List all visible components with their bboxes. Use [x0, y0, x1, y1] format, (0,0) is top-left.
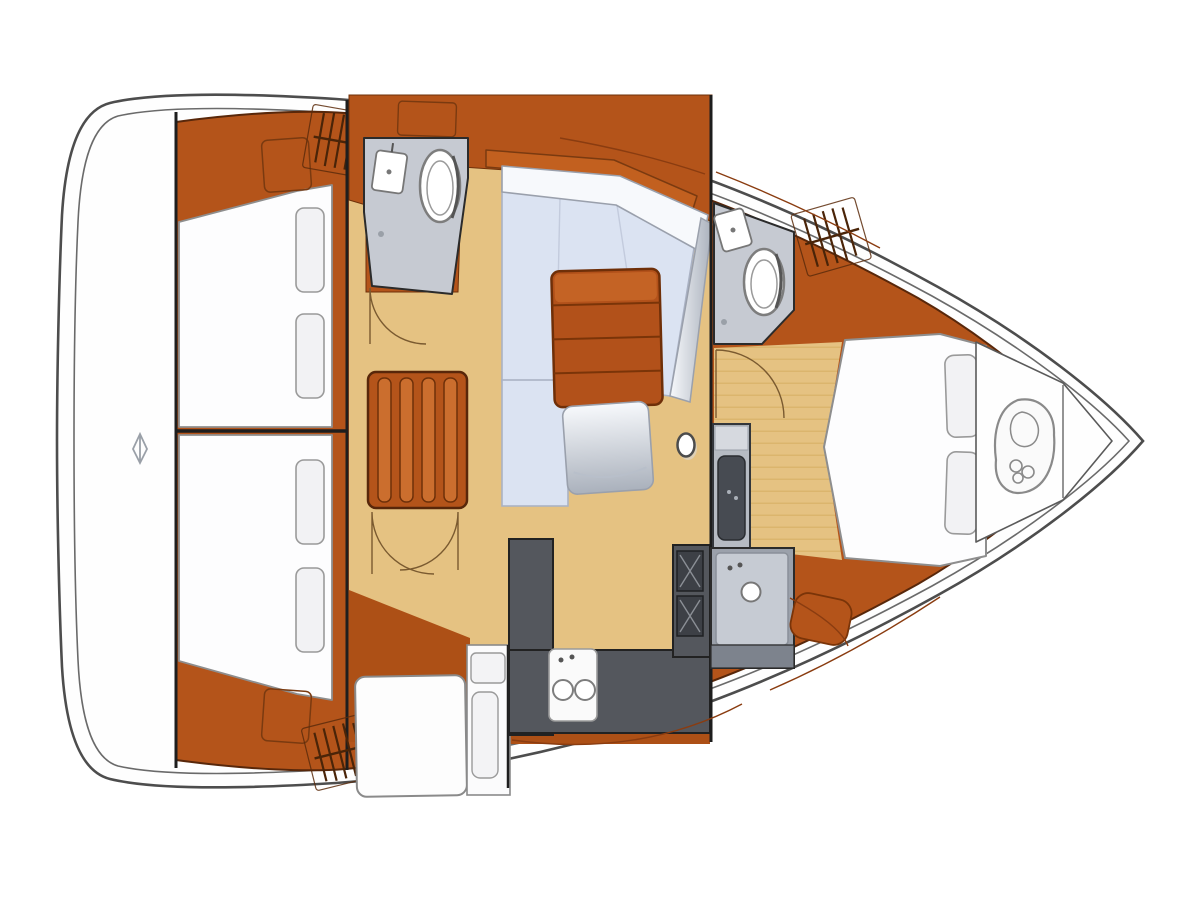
pillow: [296, 208, 324, 292]
anchor-chain-locker-icon: [995, 399, 1054, 493]
companionway-stairs: [368, 372, 467, 508]
yacht-floor-plan: [0, 0, 1200, 900]
galley-counter-base: [509, 650, 710, 733]
aft-head: [364, 138, 468, 294]
cocktail-table: [551, 269, 663, 408]
chart-seat-cushion: [471, 653, 505, 683]
pillow: [296, 314, 324, 398]
floor-plan-canvas: [0, 0, 1200, 900]
chart-table: [355, 675, 467, 797]
pillow: [296, 460, 324, 544]
pillow: [945, 354, 980, 437]
ottoman: [562, 401, 654, 495]
vanity-sink: [742, 583, 761, 602]
sink-bowl: [575, 680, 595, 700]
shower-compartment: [713, 424, 750, 548]
sink-bowl: [553, 680, 573, 700]
vanity-unit: [711, 548, 794, 668]
pillow: [296, 568, 324, 652]
shower-tray: [718, 456, 745, 540]
pillow: [945, 451, 980, 534]
chart-seat-back: [472, 692, 498, 778]
